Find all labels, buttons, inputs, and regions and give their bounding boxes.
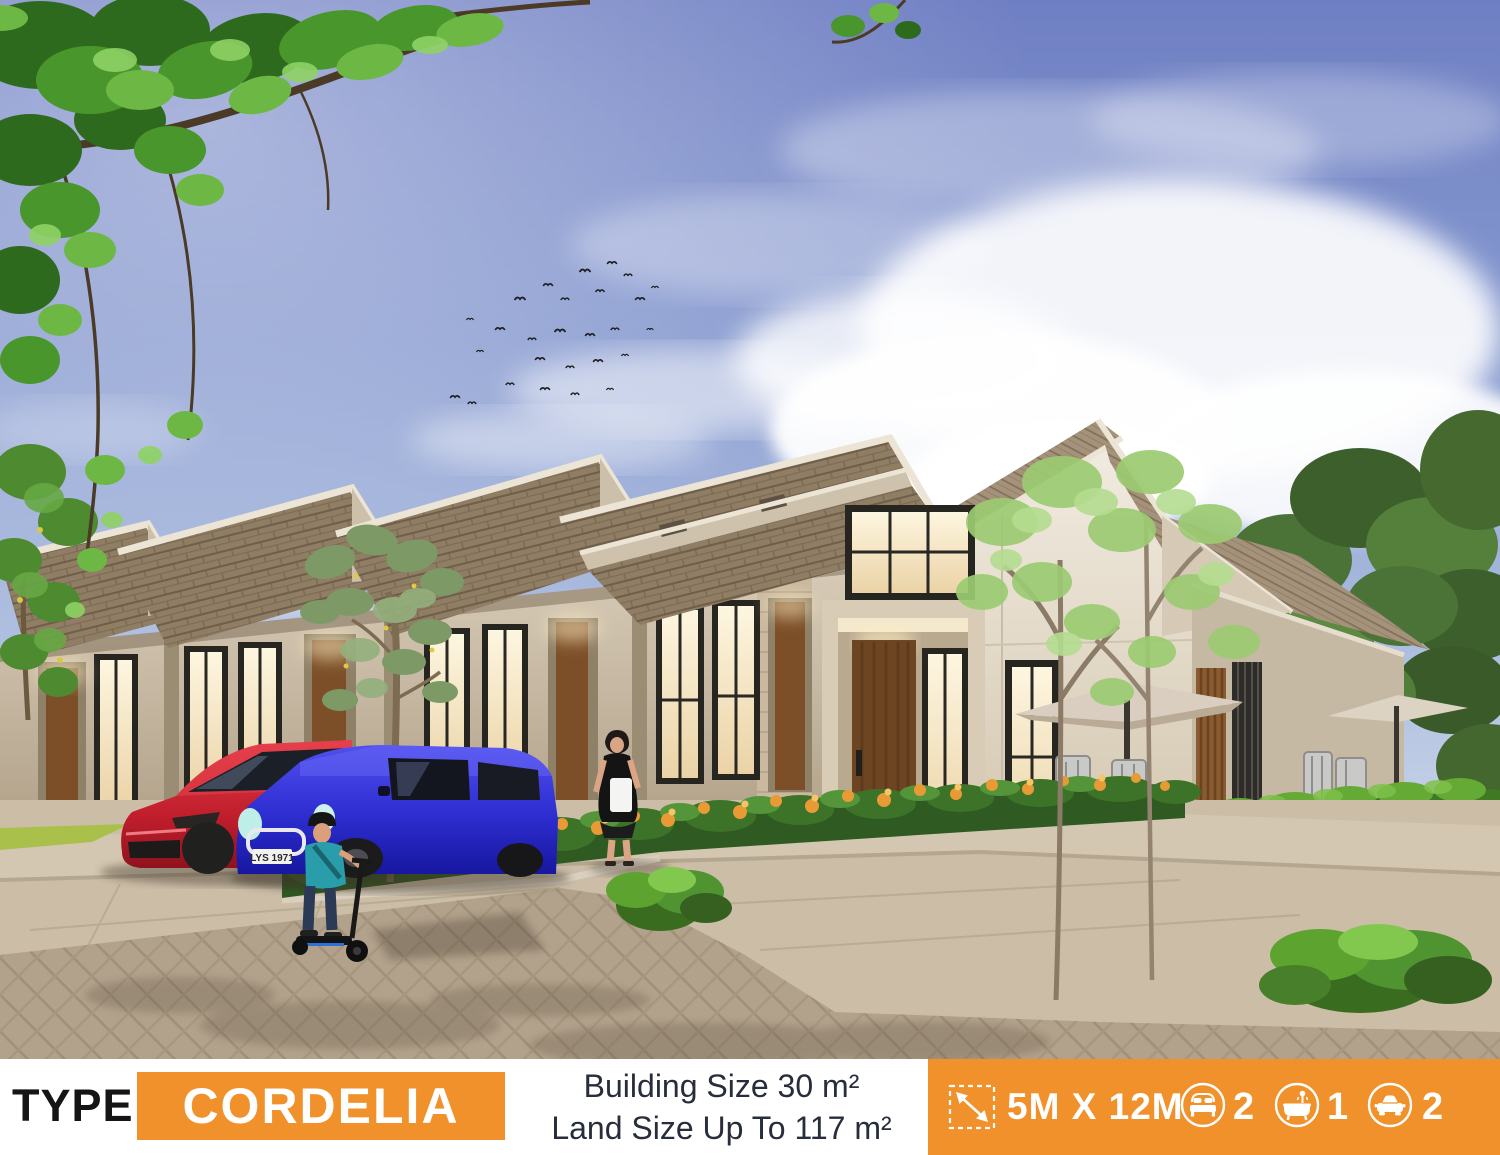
dimension-text: 5M X 12M [1007,1059,1184,1155]
bedroom-count: 2 [1233,1059,1254,1155]
poster: LYS 1971 [0,0,1500,1155]
info-banner: TYPE CORDELIA Building Size 30 m² Land S… [0,1059,1500,1155]
type-name-badge: CORDELIA [137,1072,505,1140]
land-size-text: Land Size Up To 117 m² [515,1107,928,1149]
bath-icon [1274,1082,1320,1128]
type-label: TYPE [12,1072,134,1140]
building-size-text: Building Size 30 m² [515,1065,928,1107]
size-info: Building Size 30 m² Land Size Up To 117 … [515,1059,928,1155]
bed-icon [1180,1082,1226,1128]
license-plate: LYS 1971 [250,853,294,864]
carport-count: 2 [1422,1059,1443,1155]
car-icon [1367,1082,1413,1128]
features-panel: 5M X 12M 2 1 [928,1059,1500,1155]
bathroom-count: 1 [1327,1059,1348,1155]
house-rendering: LYS 1971 [0,0,1500,1059]
dimension-icon [948,1084,996,1130]
